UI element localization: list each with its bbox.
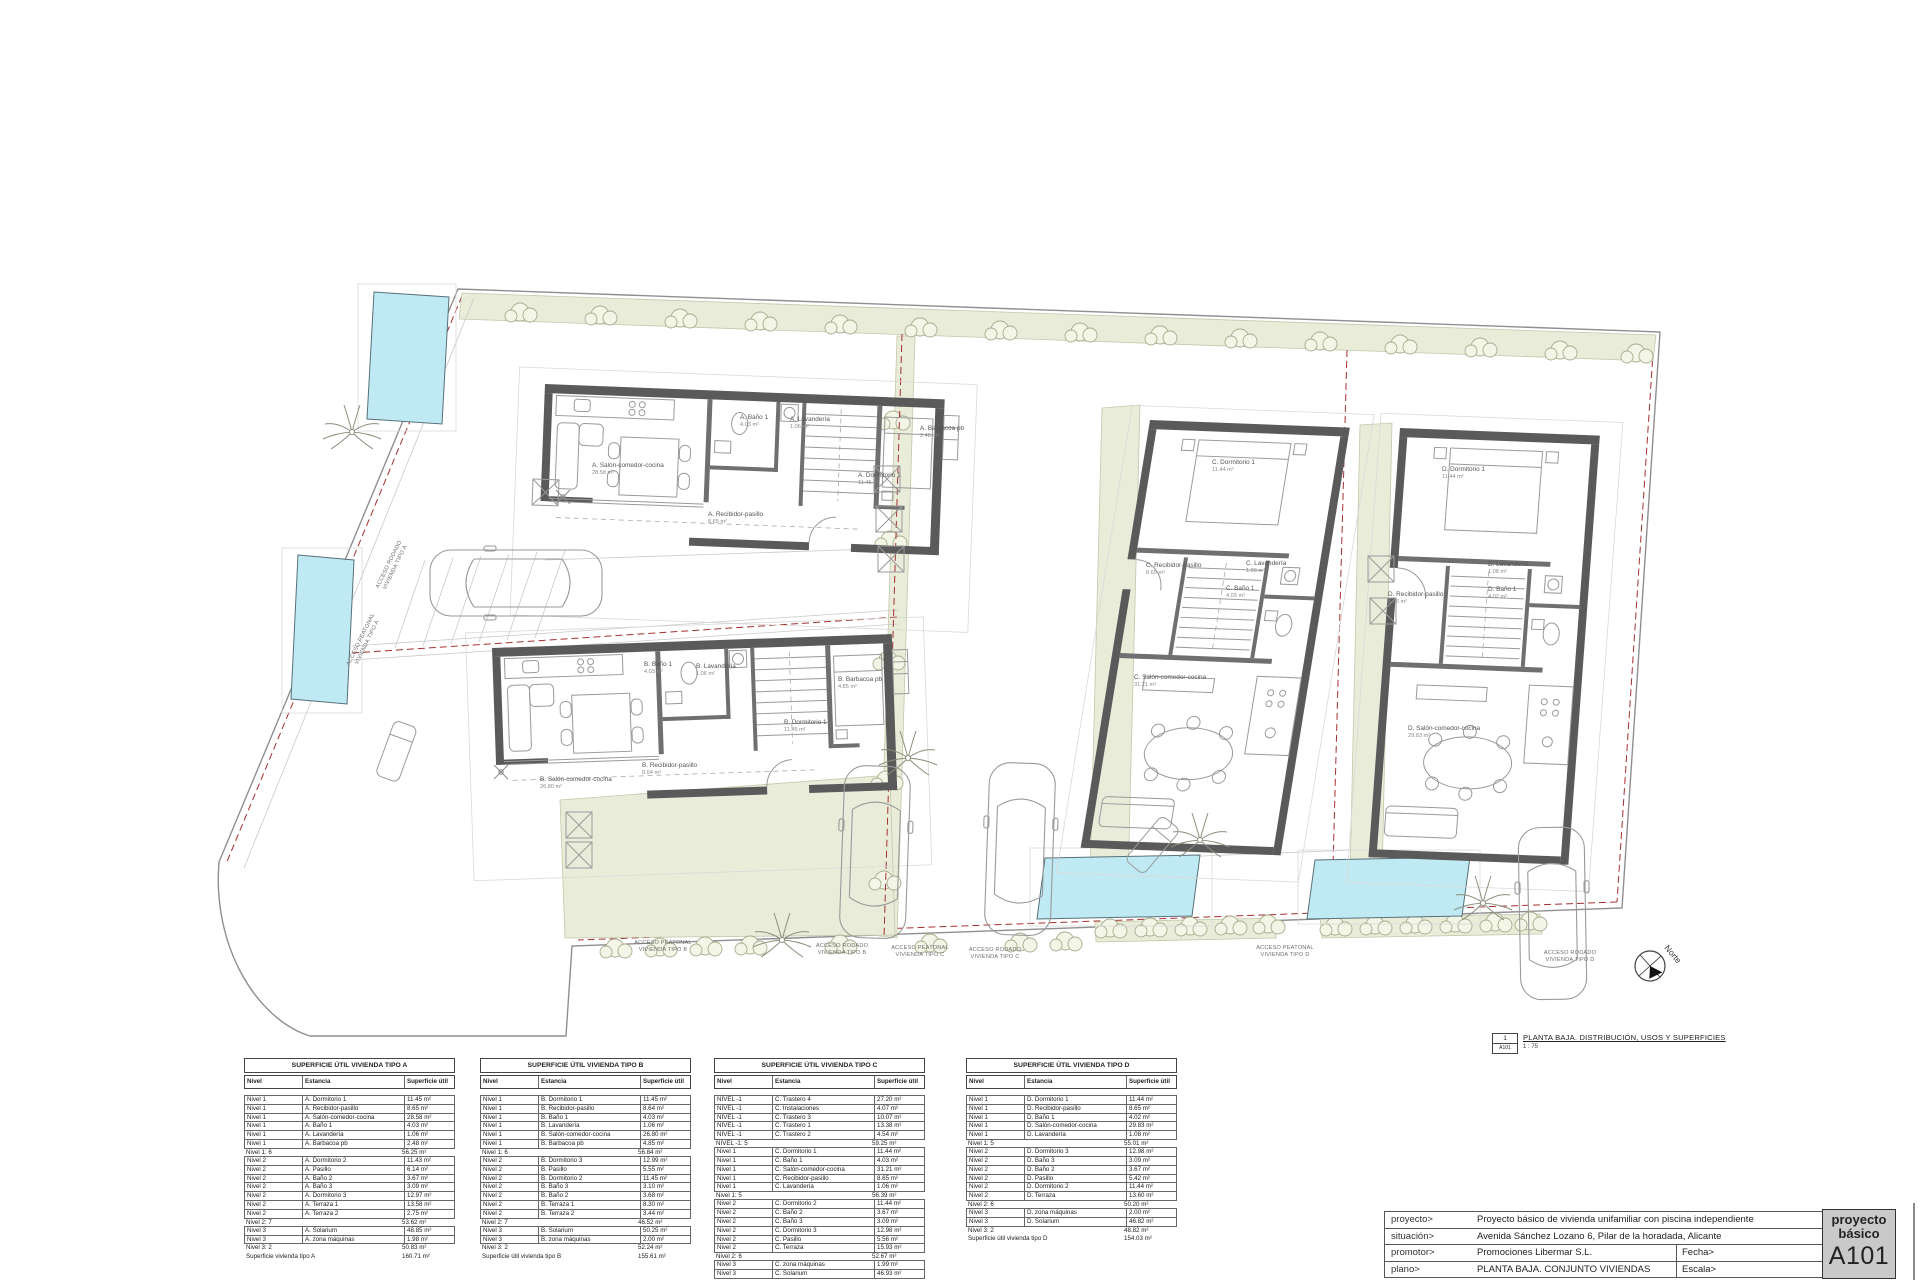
table-row: Superficie útil vivienda tipo B155.61 m² — [480, 1253, 691, 1261]
table-cell: 12.99 m² — [640, 1157, 690, 1165]
table-cell: A. Salón-comedor-cocina — [302, 1114, 404, 1122]
table-cell: 3.44 m² — [640, 1210, 690, 1218]
table-cell: 3.67 m² — [404, 1175, 454, 1183]
svg-text:C. Salón-comedor-cocina: C. Salón-comedor-cocina — [1134, 674, 1207, 681]
svg-text:D. Salón-comedor-cocina: D. Salón-comedor-cocina — [1408, 725, 1481, 732]
table-cell: Nivel 2 — [481, 1201, 538, 1209]
table-row: Nivel 2A. Baño 23.67 m² — [244, 1174, 455, 1184]
table-cell: B. Terraza 2 — [538, 1210, 640, 1218]
svg-text:11.44 m²: 11.44 m² — [1442, 474, 1464, 480]
table-cell: Nivel 1 — [715, 1157, 772, 1165]
table-cell: Nivel 2: 7 — [244, 1219, 400, 1227]
table-cell: Nivel 3: 2 — [966, 1227, 1122, 1235]
table-header-row: NivelEstanciaSuperficie útil — [244, 1075, 455, 1089]
svg-text:A. Dormitorio 1: A. Dormitorio 1 — [858, 472, 901, 479]
table-row: Nivel 2B. Dormitorio 312.99 m² — [480, 1156, 691, 1166]
table-cell: Nivel 3 — [245, 1227, 302, 1235]
pool-d — [1307, 857, 1470, 919]
table-cell: 2.48 m² — [404, 1140, 454, 1148]
table-cell: Nivel 1 — [967, 1105, 1024, 1113]
table-cell: D. Pasillo — [1024, 1175, 1126, 1183]
table-cell: 59.25 m² — [870, 1140, 925, 1148]
table-cell: 50.20 m² — [1122, 1201, 1177, 1209]
table-cell: Nivel 3 — [481, 1236, 538, 1244]
svg-text:ACCESO PEATONAL: ACCESO PEATONAL — [1256, 945, 1314, 951]
table-cell: 56.25 m² — [400, 1149, 455, 1157]
svg-text:VIVIENDA TIPO D: VIVIENDA TIPO D — [1546, 957, 1595, 963]
table-cell: A. Recibidor-pasillo — [302, 1105, 404, 1113]
table-cell: 11.44 m² — [1126, 1183, 1176, 1191]
table-row: Nivel 2C. Baño 23.67 m² — [714, 1208, 925, 1218]
table-cell: Nivel 1 — [715, 1148, 772, 1156]
table-cell: Nivel 2 — [715, 1200, 772, 1208]
table-row: Nivel 3C. Solarium46.93 m² — [714, 1269, 925, 1279]
table-cell: A. Baño 3 — [302, 1183, 404, 1191]
table-row: Nivel 2D. Baño 23.67 m² — [966, 1165, 1177, 1175]
drawing-sheet: A. Salón-comedor-cocina28.58 m² A. Baño … — [0, 0, 1920, 1280]
table-cell: 8.65 m² — [404, 1105, 454, 1113]
table-cell: Nivel 1: 5 — [714, 1192, 870, 1200]
callout-ref-box: 1 A101 — [1492, 1033, 1518, 1054]
table-cell: C. Trastero 2 — [772, 1131, 874, 1139]
table-cell: D. Baño 2 — [1024, 1166, 1126, 1174]
table-cell: 26.80 m² — [640, 1131, 690, 1139]
table-cell: C. Dormitorio 1 — [772, 1148, 874, 1156]
table-header-cell: Nivel — [481, 1076, 538, 1088]
titleblock-fecha-label: Fecha> — [1677, 1245, 1752, 1261]
table-row: Superficie vivienda tipo A160.71 m² — [244, 1253, 455, 1261]
table-cell: A. Terraza 2 — [302, 1210, 404, 1218]
table-row: Nivel 3D. Solarium46.82 m² — [966, 1217, 1177, 1227]
table-header-cell: Estancia — [538, 1076, 640, 1088]
table-cell: 6.14 m² — [404, 1166, 454, 1174]
table-row: Nivel 3D. zona máquinas2.00 m² — [966, 1208, 1177, 1218]
table-row: Nivel 3: 250.83 m² — [244, 1244, 455, 1252]
svg-text:VIVIENDA TIPO B: VIVIENDA TIPO B — [818, 950, 867, 956]
table-row: Nivel 1C. Recibidor-pasillo8.65 m² — [714, 1174, 925, 1184]
table-cell: C. Instalaciones — [772, 1105, 874, 1113]
table-cell: 3.10 m² — [640, 1183, 690, 1191]
drawing-callout: 1 A101 PLANTA BAJA. DISTRIBUCIÓN, USOS Y… — [1492, 1033, 1726, 1054]
title-block: proyecto> Proyecto básico de vivienda un… — [1384, 1211, 1893, 1278]
table-row: Nivel 2A. Pasillo6.14 m² — [244, 1165, 455, 1175]
table-cell: Nivel 1 — [481, 1140, 538, 1148]
svg-text:1.06 m²: 1.06 m² — [1246, 568, 1265, 574]
svg-text:VIVIENDA TIPO B: VIVIENDA TIPO B — [639, 947, 688, 953]
svg-text:VIVIENDA TIPO C: VIVIENDA TIPO C — [971, 954, 1020, 960]
table-cell: 11.44 m² — [874, 1148, 924, 1156]
table-row: Nivel 2D. Baño 33.09 m² — [966, 1156, 1177, 1166]
table-row: Nivel 2D. Dormitorio 312.98 m² — [966, 1147, 1177, 1157]
drawing-title: PLANTA BAJA. DISTRIBUCIÓN, USOS Y SUPERF… — [1523, 1033, 1726, 1042]
table-row: Nivel 3B. zona máquinas2.00 m² — [480, 1235, 691, 1245]
svg-text:ACCESO PEATONAL: ACCESO PEATONAL — [634, 940, 692, 946]
table-cell: 160.71 m² — [400, 1253, 455, 1261]
table-row: Nivel 2C. Dormitorio 312.98 m² — [714, 1226, 925, 1236]
table-row: Nivel 2C. Terraza15.93 m² — [714, 1243, 925, 1253]
svg-text:B. Barbacoa pb: B. Barbacoa pb — [838, 676, 883, 683]
table-row: Nivel 1: 556.39 m² — [714, 1192, 925, 1200]
table-cell: Nivel 2 — [481, 1183, 538, 1191]
table-cell: 46.93 m² — [874, 1270, 924, 1278]
table-cell: 8.65 m² — [874, 1175, 924, 1183]
svg-text:8.65 m²: 8.65 m² — [1146, 570, 1165, 576]
table-row: Nivel 2: 652.67 m² — [714, 1253, 925, 1261]
table-row: Nivel 2A. Terraza 113.58 m² — [244, 1200, 455, 1210]
north-arrow-icon: Norte — [1629, 943, 1684, 987]
svg-text:31.21 m²: 31.21 m² — [1134, 682, 1156, 688]
table-cell: 11.44 m² — [1126, 1096, 1176, 1104]
table-cell: Nivel 1 — [715, 1175, 772, 1183]
table-cell: Nivel 2 — [481, 1192, 538, 1200]
table-cell: 3.68 m² — [640, 1192, 690, 1200]
table-cell: Nivel 3 — [967, 1218, 1024, 1226]
table-cell: C. Dormitorio 2 — [772, 1200, 874, 1208]
table-row: Nivel 1B. Dormitorio 111.45 m² — [480, 1095, 691, 1105]
table-cell: 4.85 m² — [640, 1140, 690, 1148]
svg-text:A. Lavandería: A. Lavandería — [790, 416, 830, 423]
table-cell: 46.82 m² — [1126, 1218, 1176, 1226]
table-header-row: NivelEstanciaSuperficie útil — [714, 1075, 925, 1089]
table-row: Nivel 1A. Baño 14.03 m² — [244, 1121, 455, 1131]
table-cell: D. Dormitorio 3 — [1024, 1148, 1126, 1156]
svg-text:B. Lavandería: B. Lavandería — [696, 663, 736, 670]
table-cell: 11.43 m² — [404, 1157, 454, 1165]
table-cell: D. Dormitorio 1 — [1024, 1096, 1126, 1104]
table-cell: 1.99 m² — [874, 1261, 924, 1269]
table-cell: Nivel 1 — [245, 1114, 302, 1122]
titleblock-escala-label: Escala> — [1677, 1262, 1752, 1278]
table-cell: Nivel 1 — [481, 1105, 538, 1113]
table-row: Nivel 1B. Salón-comedor-cocina26.80 m² — [480, 1130, 691, 1140]
table-header-cell: Nivel — [967, 1076, 1024, 1088]
table-cell: Nivel 3: 2 — [244, 1244, 400, 1252]
table-header-cell: Estancia — [772, 1076, 874, 1088]
table-cell: 12.97 m² — [404, 1192, 454, 1200]
sheet-border — [1913, 1203, 1915, 1280]
table-cell: Nivel 2 — [967, 1175, 1024, 1183]
svg-text:VIVIENDA TIPO C: VIVIENDA TIPO C — [896, 952, 945, 958]
svg-text:A. Baño 1: A. Baño 1 — [740, 414, 769, 421]
svg-text:D. Baño 1: D. Baño 1 — [1488, 586, 1517, 593]
table-cell: Nivel 1 — [967, 1096, 1024, 1104]
table-row: NIVEL -1C. Trastero 310.07 m² — [714, 1113, 925, 1123]
table-cell: A. Solarium — [302, 1227, 404, 1235]
titleblock-label-situacion: situación> — [1385, 1229, 1473, 1245]
table-row: Nivel 1D. Salón-comedor-cocina29.83 m² — [966, 1121, 1177, 1131]
table-row: Nivel 2A. Baño 33.09 m² — [244, 1182, 455, 1192]
table-cell: Nivel 2 — [481, 1157, 538, 1165]
svg-text:11.45 m²: 11.45 m² — [784, 727, 806, 733]
table-cell: Nivel 2 — [245, 1175, 302, 1183]
table-cell: A. Baño 2 — [302, 1175, 404, 1183]
table-title: SUPERFICIE ÚTIL VIVIENDA TIPO C — [714, 1058, 925, 1073]
stamp-line1: proyecto — [1823, 1213, 1895, 1227]
table-cell: D. Salón-comedor-cocina — [1024, 1122, 1126, 1130]
table-cell: Nivel 2: 6 — [966, 1201, 1122, 1209]
sheet-stamp: proyecto básico A101 — [1822, 1209, 1896, 1279]
table-cell: 5.56 m² — [874, 1236, 924, 1244]
table-cell: Nivel 2 — [967, 1192, 1024, 1200]
table-cell: Superficie útil vivienda tipo B — [480, 1253, 636, 1261]
table-cell: Nivel 1 — [715, 1183, 772, 1191]
table-row: Nivel 1A. Salón-comedor-cocina28.58 m² — [244, 1113, 455, 1123]
table-cell: C. Solarium — [772, 1270, 874, 1278]
table-cell: 10.07 m² — [874, 1114, 924, 1122]
table-row: Nivel 3: 252.24 m² — [480, 1244, 691, 1252]
table-cell: 3.09 m² — [1126, 1157, 1176, 1165]
table-row: Nivel 2A. Dormitorio 312.97 m² — [244, 1191, 455, 1201]
table-header-cell: Superficie útil — [404, 1076, 454, 1088]
table-cell: Nivel 2 — [967, 1166, 1024, 1174]
table-row: Nivel 1A. Barbacoa pb2.48 m² — [244, 1139, 455, 1149]
table-cell: B. Dormitorio 2 — [538, 1175, 640, 1183]
table-cell: 155.61 m² — [636, 1253, 691, 1261]
table-cell: B. Recibidor-pasillo — [538, 1105, 640, 1113]
table-row: Nivel 1B. Lavandería1.06 m² — [480, 1121, 691, 1131]
table-cell: Nivel 1 — [481, 1096, 538, 1104]
table-cell: Nivel 1 — [481, 1131, 538, 1139]
svg-text:1.06 m²: 1.06 m² — [790, 424, 809, 430]
table-row: Nivel 2D. Dormitorio 211.44 m² — [966, 1182, 1177, 1192]
sheet-number: A101 — [1823, 1241, 1895, 1271]
table-cell: Nivel 2 — [715, 1227, 772, 1235]
table-row: Nivel 2B. Terraza 18.30 m² — [480, 1200, 691, 1210]
table-cell: C. Pasillo — [772, 1236, 874, 1244]
table-cell: Nivel 2 — [967, 1148, 1024, 1156]
table-row: Nivel 1A. Dormitorio 111.45 m² — [244, 1095, 455, 1105]
table-row: Nivel 1C. Salón-comedor-cocina31.21 m² — [714, 1165, 925, 1175]
table-cell: B. Baño 3 — [538, 1183, 640, 1191]
table-cell: 4.03 m² — [874, 1157, 924, 1165]
table-cell: 53.62 m² — [400, 1219, 455, 1227]
table-row: Nivel 1B. Baño 14.03 m² — [480, 1113, 691, 1123]
table-cell: 50.83 m² — [400, 1244, 455, 1252]
table-header-cell: Estancia — [302, 1076, 404, 1088]
table-cell: Nivel 3 — [715, 1270, 772, 1278]
table-row: Nivel 1D. Recibidor-pasillo8.65 m² — [966, 1104, 1177, 1114]
table-cell: 1.06 m² — [640, 1122, 690, 1130]
table-cell: Nivel 2 — [245, 1183, 302, 1191]
svg-text:C. Dormitorio 1: C. Dormitorio 1 — [1212, 459, 1255, 466]
table-cell: Nivel 2 — [715, 1236, 772, 1244]
table-cell: NIVEL -1 — [715, 1105, 772, 1113]
table-title: SUPERFICIE ÚTIL VIVIENDA TIPO B — [480, 1058, 691, 1073]
table-cell: B. Lavandería — [538, 1122, 640, 1130]
area-table-tipo-c: SUPERFICIE ÚTIL VIVIENDA TIPO CNivelEsta… — [714, 1058, 925, 1279]
titleblock-value-promotor: Promociones Libermar S.L. — [1473, 1245, 1676, 1261]
table-cell: D. Lavandería — [1024, 1131, 1126, 1139]
table-row: Nivel 1: 656.84 m² — [480, 1149, 691, 1157]
table-cell: Nivel 1 — [245, 1131, 302, 1139]
table-cell: B. Baño 1 — [538, 1114, 640, 1122]
table-cell: Nivel 1 — [967, 1122, 1024, 1130]
table-header-row: NivelEstanciaSuperficie útil — [480, 1075, 691, 1089]
table-cell: Nivel 1: 6 — [480, 1149, 636, 1157]
table-cell: 29.83 m² — [1126, 1122, 1176, 1130]
table-row: NIVEL -1C. Trastero 24.54 m² — [714, 1130, 925, 1140]
table-row: Nivel 3: 248.82 m² — [966, 1227, 1177, 1235]
table-title: SUPERFICIE ÚTIL VIVIENDA TIPO A — [244, 1058, 455, 1073]
table-cell: 56.84 m² — [636, 1149, 691, 1157]
table-cell: Superficie útil vivienda tipo D — [966, 1235, 1122, 1243]
svg-text:D. Lavandería: D. Lavandería — [1488, 561, 1529, 568]
table-cell: 2.00 m² — [1126, 1209, 1176, 1217]
table-cell: Nivel 2 — [245, 1157, 302, 1165]
table-cell: D. zona máquinas — [1024, 1209, 1126, 1217]
table-cell: D. Dormitorio 2 — [1024, 1183, 1126, 1191]
table-cell: 11.44 m² — [874, 1200, 924, 1208]
svg-text:A. Salón-comedor-cocina: A. Salón-comedor-cocina — [592, 462, 664, 469]
table-row: Nivel 1B. Barbacoa pb4.85 m² — [480, 1139, 691, 1149]
table-row: Nivel 1A. Lavandería1.06 m² — [244, 1130, 455, 1140]
table-cell: 2.00 m² — [640, 1236, 690, 1244]
table-row: Superficie útil vivienda tipo D154.03 m² — [966, 1235, 1177, 1243]
table-row: NIVEL -1C. Trastero 113.38 m² — [714, 1121, 925, 1131]
table-header-cell: Estancia — [1024, 1076, 1126, 1088]
table-cell: 1.06 m² — [404, 1131, 454, 1139]
svg-text:B. Baño 1: B. Baño 1 — [644, 661, 673, 668]
table-cell: 52.67 m² — [870, 1253, 925, 1261]
table-cell: NIVEL -1: 5 — [714, 1140, 870, 1148]
table-cell: B. zona máquinas — [538, 1236, 640, 1244]
table-cell: B. Pasillo — [538, 1166, 640, 1174]
svg-text:11.44 m²: 11.44 m² — [1212, 467, 1234, 473]
table-cell: 4.54 m² — [874, 1131, 924, 1139]
table-cell: A. Dormitorio 2 — [302, 1157, 404, 1165]
table-cell: 48.82 m² — [1122, 1227, 1177, 1235]
table-row: Nivel 2: 650.20 m² — [966, 1201, 1177, 1209]
table-cell: 28.58 m² — [404, 1114, 454, 1122]
table-row: Nivel 2D. Terraza13.60 m² — [966, 1191, 1177, 1201]
table-cell: 8.65 m² — [1126, 1105, 1176, 1113]
table-cell: Nivel 1 — [967, 1114, 1024, 1122]
table-cell: Nivel 2 — [245, 1166, 302, 1174]
table-row: Nivel 2B. Baño 23.68 m² — [480, 1191, 691, 1201]
table-row: Nivel 2C. Pasillo5.56 m² — [714, 1235, 925, 1245]
table-cell: 2.75 m² — [404, 1210, 454, 1218]
svg-text:D. Dormitorio 1: D. Dormitorio 1 — [1442, 466, 1485, 473]
table-cell: 4.03 m² — [640, 1114, 690, 1122]
svg-text:ACCESO RODADO: ACCESO RODADO — [816, 943, 869, 949]
table-cell: 154.03 m² — [1122, 1235, 1177, 1243]
svg-text:C. Recibidor-pasillo: C. Recibidor-pasillo — [1146, 562, 1202, 569]
north-label: Norte — [1662, 943, 1683, 966]
svg-text:4.03 m²: 4.03 m² — [644, 669, 663, 675]
table-header-cell: Nivel — [245, 1076, 302, 1088]
table-cell: 4.03 m² — [404, 1122, 454, 1130]
table-cell: Nivel 3 — [967, 1209, 1024, 1217]
table-cell: B. Salón-comedor-cocina — [538, 1131, 640, 1139]
table-row: Nivel 1C. Baño 14.03 m² — [714, 1156, 925, 1166]
svg-text:VIVIENDA TIPO D: VIVIENDA TIPO D — [1261, 952, 1310, 958]
table-cell: Nivel 2 — [715, 1244, 772, 1252]
svg-text:C. Baño 1: C. Baño 1 — [1226, 585, 1255, 592]
table-cell: 31.21 m² — [874, 1166, 924, 1174]
table-row: Nivel 2A. Terraza 22.75 m² — [244, 1209, 455, 1219]
table-cell: Nivel 1 — [245, 1096, 302, 1104]
svg-text:B. Salón-comedor-cocina: B. Salón-comedor-cocina — [540, 776, 612, 783]
table-row: Nivel 2B. Terraza 23.44 m² — [480, 1209, 691, 1219]
table-cell: Nivel 1: 5 — [966, 1140, 1122, 1148]
table-cell: B. Terraza 1 — [538, 1201, 640, 1209]
table-cell: 13.38 m² — [874, 1122, 924, 1130]
table-cell: B. Solarium — [538, 1227, 640, 1235]
svg-text:4.85 m²: 4.85 m² — [838, 684, 857, 690]
table-cell: C. Trastero 3 — [772, 1114, 874, 1122]
table-cell: A. Baño 1 — [302, 1122, 404, 1130]
table-cell: 52.24 m² — [636, 1244, 691, 1252]
table-cell: Nivel 3 — [715, 1261, 772, 1269]
table-row: Nivel 1C. Lavandería1.06 m² — [714, 1182, 925, 1192]
svg-text:B. Dormitorio 1: B. Dormitorio 1 — [784, 719, 827, 726]
table-cell: 3.09 m² — [404, 1183, 454, 1191]
table-cell: C. Recibidor-pasillo — [772, 1175, 874, 1183]
table-cell: 50.25 m² — [640, 1227, 690, 1235]
table-cell: 4.02 m² — [1126, 1114, 1176, 1122]
table-row: Nivel 2D. Pasillo5.42 m² — [966, 1174, 1177, 1184]
svg-text:8.65 m²: 8.65 m² — [708, 519, 727, 525]
table-cell: A. Lavandería — [302, 1131, 404, 1139]
svg-text:ACCESO PEATONAL: ACCESO PEATONAL — [891, 945, 949, 951]
table-cell: Superficie vivienda tipo A — [244, 1253, 400, 1261]
table-row: Nivel 2B. Dormitorio 211.45 m² — [480, 1174, 691, 1184]
table-row: NIVEL -1C. Instalaciones4.07 m² — [714, 1104, 925, 1114]
table-header-cell: Superficie útil — [640, 1076, 690, 1088]
table-cell: Nivel 3 — [245, 1236, 302, 1244]
table-row: Nivel 2B. Pasillo5.55 m² — [480, 1165, 691, 1175]
area-table-tipo-a: SUPERFICIE ÚTIL VIVIENDA TIPO ANivelEsta… — [244, 1058, 455, 1261]
table-cell: Nivel 2 — [715, 1218, 772, 1226]
svg-text:29.83 m²: 29.83 m² — [1408, 733, 1430, 739]
pool-c — [1037, 855, 1200, 919]
table-row: Nivel 1: 656.25 m² — [244, 1149, 455, 1157]
drawing-scale: 1 : 75 — [1523, 1044, 1726, 1050]
table-cell: 5.55 m² — [640, 1166, 690, 1174]
area-table-tipo-d: SUPERFICIE ÚTIL VIVIENDA TIPO DNivelEsta… — [966, 1058, 1177, 1243]
table-cell: Nivel 2 — [967, 1183, 1024, 1191]
table-row: NIVEL -1: 559.25 m² — [714, 1140, 925, 1148]
stamp-line2: básico — [1823, 1227, 1895, 1241]
table-cell: A. Barbacoa pb — [302, 1140, 404, 1148]
table-cell: NIVEL -1 — [715, 1131, 772, 1139]
svg-text:1.08 m²: 1.08 m² — [1488, 569, 1507, 575]
area-table-tipo-b: SUPERFICIE ÚTIL VIVIENDA TIPO BNivelEsta… — [480, 1058, 691, 1261]
table-cell: D. Recibidor-pasillo — [1024, 1105, 1126, 1113]
table-cell: Nivel 2: 7 — [480, 1219, 636, 1227]
table-cell: 11.45 m² — [640, 1175, 690, 1183]
table-cell: NIVEL -1 — [715, 1096, 772, 1104]
table-cell: NIVEL -1 — [715, 1114, 772, 1122]
table-cell: 3.67 m² — [1126, 1166, 1176, 1174]
svg-text:26.80 m²: 26.80 m² — [540, 784, 562, 790]
svg-text:B. Recibidor-pasillo: B. Recibidor-pasillo — [642, 762, 697, 769]
titleblock-label-promotor: promotor> — [1385, 1245, 1473, 1261]
table-cell: Nivel 2 — [245, 1201, 302, 1209]
table-cell: Nivel 1: 6 — [244, 1149, 400, 1157]
table-cell: 4.07 m² — [874, 1105, 924, 1113]
svg-text:2.48 m²: 2.48 m² — [920, 433, 939, 439]
table-cell: D. Baño 3 — [1024, 1157, 1126, 1165]
table-cell: Nivel 2 — [715, 1209, 772, 1217]
callout-sheet: A101 — [1493, 1044, 1517, 1053]
svg-text:8.65 m²: 8.65 m² — [1388, 599, 1407, 605]
table-cell: C. zona máquinas — [772, 1261, 874, 1269]
table-row: Nivel 1D. Dormitorio 111.44 m² — [966, 1095, 1177, 1105]
table-cell: NIVEL -1 — [715, 1122, 772, 1130]
table-cell: Nivel 1 — [715, 1166, 772, 1174]
table-cell: D. Baño 1 — [1024, 1114, 1126, 1122]
